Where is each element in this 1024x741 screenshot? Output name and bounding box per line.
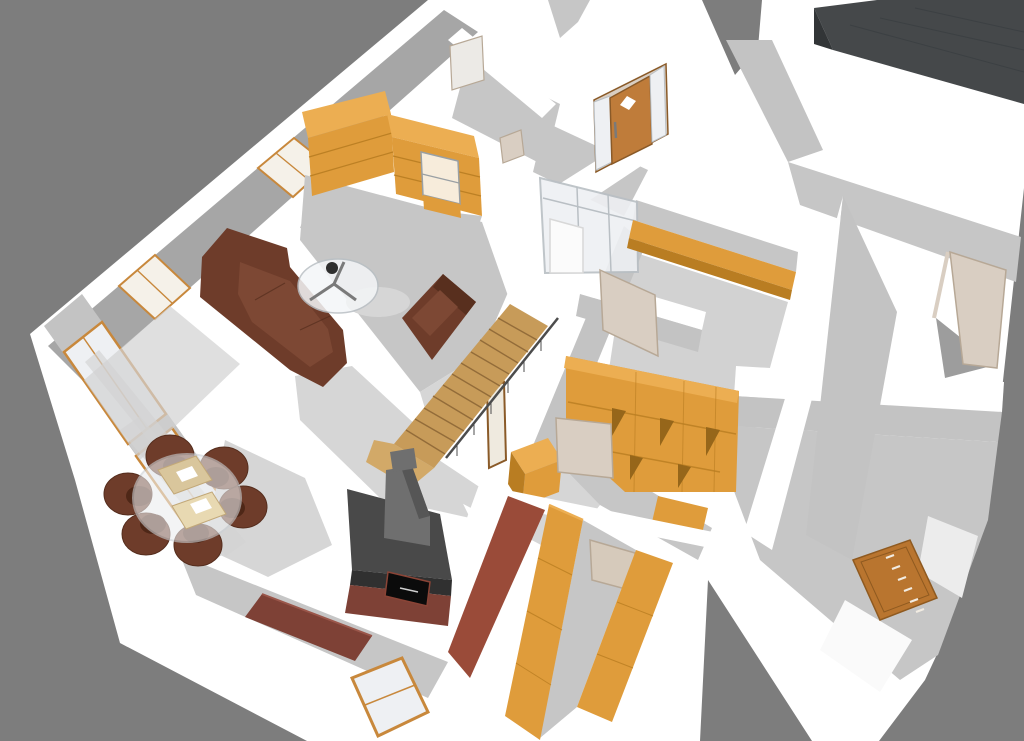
kitchen-door [450, 36, 484, 90]
storage-door-lower [556, 418, 613, 478]
front-door-sidelight-left [594, 96, 612, 170]
render-canvas-3d-view[interactable] [0, 0, 1024, 741]
front-door-sidelight-right [650, 66, 666, 142]
front-door-handle [615, 122, 616, 138]
coffee-table [298, 259, 378, 313]
vestibule-door [550, 219, 583, 273]
